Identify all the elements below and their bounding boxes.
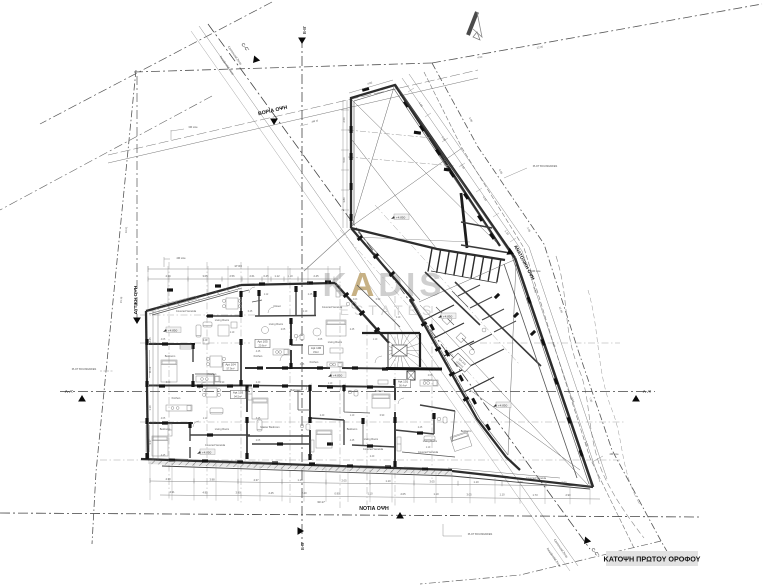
- svg-text:Bedroom: Bedroom: [461, 429, 472, 433]
- svg-text:+4.850: +4.850: [202, 450, 212, 454]
- svg-text:4.37: 4.37: [253, 478, 259, 482]
- svg-text:2.45: 2.45: [418, 427, 423, 429]
- svg-text:PLOT BOUNDARIES: PLOT BOUNDARIES: [72, 367, 97, 371]
- svg-text:15.15: 15.15: [119, 296, 123, 303]
- svg-text:Covered Veranda: Covered Veranda: [205, 443, 226, 447]
- svg-text:Closet: Closet: [273, 304, 281, 308]
- svg-text:4.45: 4.45: [256, 351, 261, 353]
- svg-text:PLOT BOUNDARIES: PLOT BOUNDARIES: [533, 164, 558, 168]
- svg-text:20.6m²: 20.6m²: [258, 344, 266, 348]
- svg-text:Living Room: Living Room: [423, 439, 437, 443]
- svg-text:0.90: 0.90: [380, 415, 385, 417]
- svg-text:3.90: 3.90: [235, 491, 241, 495]
- svg-text:+4.850: +4.850: [498, 403, 508, 407]
- svg-text:Living Room: Living Room: [364, 437, 378, 441]
- svg-text:33.17: 33.17: [317, 500, 325, 504]
- svg-text:A-A': A-A': [65, 389, 74, 394]
- svg-text:2.05: 2.05: [400, 492, 406, 496]
- svg-text:Apt 103: Apt 103: [233, 391, 244, 395]
- svg-text:Kitchen: Kitchen: [254, 354, 263, 358]
- svg-text:4.03: 4.03: [353, 299, 358, 301]
- svg-text:B-B': B-B': [302, 26, 307, 35]
- svg-text:Covered Veranda: Covered Veranda: [418, 450, 439, 454]
- svg-text:2.45: 2.45: [268, 491, 274, 495]
- svg-text:4.30: 4.30: [165, 477, 171, 481]
- svg-text:3.45: 3.45: [256, 418, 261, 420]
- svg-text:ΔΥΤΙΚΗ ΟΨΗ: ΔΥΤΙΚΗ ΟΨΗ: [133, 285, 138, 314]
- svg-text:4.95: 4.95: [202, 490, 208, 494]
- svg-text:+4.850: +4.850: [333, 373, 343, 377]
- svg-text:3.05: 3.05: [202, 274, 208, 278]
- svg-text:B-B': B-B': [300, 542, 305, 551]
- svg-text:2.40: 2.40: [256, 382, 261, 384]
- svg-text:4.45: 4.45: [161, 455, 166, 457]
- svg-text:Apt 105: Apt 105: [257, 340, 268, 344]
- svg-text:3M Line: 3M Line: [188, 125, 198, 129]
- svg-text:1.10: 1.10: [350, 415, 355, 417]
- svg-text:3.98: 3.98: [209, 477, 215, 481]
- svg-text:2.90: 2.90: [565, 493, 571, 497]
- svg-text:1.73: 1.73: [532, 493, 538, 497]
- svg-text:Bathroom: Bathroom: [290, 388, 301, 392]
- svg-text:2.56: 2.56: [229, 274, 235, 278]
- svg-text:11.13: 11.13: [148, 366, 152, 373]
- svg-text:0.90: 0.90: [517, 480, 523, 484]
- svg-text:2.40: 2.40: [301, 491, 307, 495]
- svg-text:57.9m²: 57.9m²: [226, 367, 234, 371]
- svg-text:Kitchen: Kitchen: [172, 396, 181, 400]
- svg-text:3.80: 3.80: [342, 197, 346, 203]
- svg-text:Living Room: Living Room: [328, 340, 342, 344]
- svg-text:Kitchen: Kitchen: [310, 360, 319, 364]
- svg-text:4M Line: 4M Line: [176, 256, 186, 260]
- svg-text:94.5m²: 94.5m²: [234, 395, 242, 399]
- svg-text:Bedroom: Bedroom: [160, 427, 171, 431]
- svg-text:3M Line: 3M Line: [531, 269, 541, 273]
- svg-text:Covered Veranda: Covered Veranda: [176, 309, 197, 313]
- svg-text:A-A': A-A': [643, 389, 652, 394]
- svg-text:0.45: 0.45: [248, 311, 253, 313]
- svg-text:Living Room: Living Room: [269, 322, 283, 326]
- svg-text:4.39: 4.39: [165, 274, 171, 278]
- svg-text:4.45: 4.45: [350, 440, 355, 442]
- svg-text:1.10: 1.10: [148, 405, 152, 411]
- svg-text:1.10: 1.10: [426, 447, 431, 449]
- svg-text:Apt 101: Apt 101: [398, 380, 409, 384]
- svg-text:ΚΑΤΟΨΗ ΠΡΩΤΟΥ ΟΡΟΦΟΥ: ΚΑΤΟΨΗ ΠΡΩΤΟΥ ΟΡΟΦΟΥ: [604, 555, 701, 564]
- svg-text:2.61: 2.61: [249, 274, 255, 278]
- svg-text:2.45: 2.45: [148, 337, 152, 343]
- svg-text:2.40: 2.40: [203, 340, 208, 342]
- svg-text:2.05: 2.05: [341, 479, 347, 483]
- svg-text:1.10: 1.10: [373, 339, 378, 341]
- svg-text:1.10: 1.10: [396, 317, 401, 319]
- svg-text:4.05: 4.05: [318, 339, 323, 341]
- svg-text:1.10: 1.10: [473, 480, 479, 484]
- svg-text:Covered Veranda: Covered Veranda: [322, 305, 343, 309]
- svg-text:3.05: 3.05: [429, 479, 435, 483]
- svg-text:+4.850: +4.850: [396, 215, 406, 219]
- svg-text:1.10: 1.10: [303, 311, 308, 313]
- svg-text:33m²: 33m²: [313, 350, 319, 354]
- svg-text:2.05: 2.05: [428, 375, 433, 377]
- svg-text:56.4m²: 56.4m²: [399, 384, 407, 388]
- svg-text:1.10: 1.10: [499, 493, 505, 497]
- svg-text:Living Room: Living Room: [215, 318, 229, 322]
- svg-text:2.90: 2.90: [561, 481, 567, 485]
- svg-text:5.00: 5.00: [342, 157, 346, 163]
- svg-text:4.05: 4.05: [161, 418, 166, 420]
- svg-text:Master Bedroom: Master Bedroom: [260, 425, 279, 429]
- svg-text:2.40: 2.40: [370, 456, 375, 458]
- svg-text:10.91: 10.91: [124, 226, 128, 233]
- svg-text:1.10: 1.10: [297, 478, 303, 482]
- svg-text:0.90: 0.90: [220, 382, 225, 384]
- svg-text:1.10: 1.10: [367, 492, 373, 496]
- svg-text:2.45: 2.45: [313, 274, 319, 278]
- svg-text:1.73: 1.73: [308, 455, 313, 457]
- svg-text:4.05: 4.05: [161, 339, 166, 341]
- svg-text:1.10: 1.10: [328, 383, 333, 385]
- svg-text:2.05: 2.05: [256, 440, 261, 442]
- svg-text:Bedroom: Bedroom: [165, 354, 176, 358]
- svg-text:1.12: 1.12: [264, 294, 269, 296]
- svg-text:2.40: 2.40: [320, 415, 325, 417]
- svg-text:4M Line: 4M Line: [609, 452, 619, 456]
- svg-text:ΝΟΤΙΑ ΟΨΗ: ΝΟΤΙΑ ΟΨΗ: [359, 506, 389, 512]
- svg-text:0.90: 0.90: [334, 491, 340, 495]
- svg-text:Covered Veranda: Covered Veranda: [363, 447, 384, 451]
- svg-text:PLOT BOUNDARIES: PLOT BOUNDARIES: [468, 532, 493, 536]
- svg-text:1.10: 1.10: [433, 492, 439, 496]
- svg-text:3.17: 3.17: [148, 439, 152, 445]
- svg-text:2.45: 2.45: [308, 294, 313, 296]
- svg-text:3.05: 3.05: [300, 364, 305, 366]
- svg-text:1.10: 1.10: [287, 274, 293, 278]
- svg-text:KADIS: KADIS: [323, 266, 446, 303]
- svg-text:1.10: 1.10: [385, 479, 391, 483]
- svg-text:4.91: 4.91: [169, 490, 175, 494]
- svg-text:+4.850: +4.850: [443, 314, 453, 318]
- svg-text:Kitchen: Kitchen: [208, 372, 217, 376]
- svg-text:Bedroom: Bedroom: [375, 389, 386, 393]
- svg-text:Apt 106: Apt 106: [311, 346, 322, 350]
- svg-text:2.50: 2.50: [342, 117, 346, 123]
- svg-text:Living Room: Living Room: [215, 427, 229, 431]
- svg-text:3.05: 3.05: [466, 492, 472, 496]
- svg-text:Kitchen: Kitchen: [424, 378, 433, 382]
- svg-text:Apt 104: Apt 104: [225, 363, 236, 367]
- svg-text:0.90: 0.90: [376, 299, 381, 301]
- svg-text:0.45: 0.45: [263, 274, 269, 278]
- svg-text:Bedroom: Bedroom: [347, 427, 358, 431]
- svg-text:2.05: 2.05: [281, 329, 286, 331]
- svg-text:2.45: 2.45: [350, 329, 355, 331]
- svg-text:+4.850: +4.850: [168, 328, 178, 332]
- svg-text:1.10: 1.10: [203, 418, 208, 420]
- svg-text:1.12: 1.12: [274, 274, 280, 278]
- svg-text:Covered Veranda: Covered Veranda: [526, 476, 547, 480]
- svg-text:17.63: 17.63: [234, 264, 242, 268]
- svg-text:1.10: 1.10: [230, 332, 235, 334]
- svg-text:3.60: 3.60: [166, 382, 171, 384]
